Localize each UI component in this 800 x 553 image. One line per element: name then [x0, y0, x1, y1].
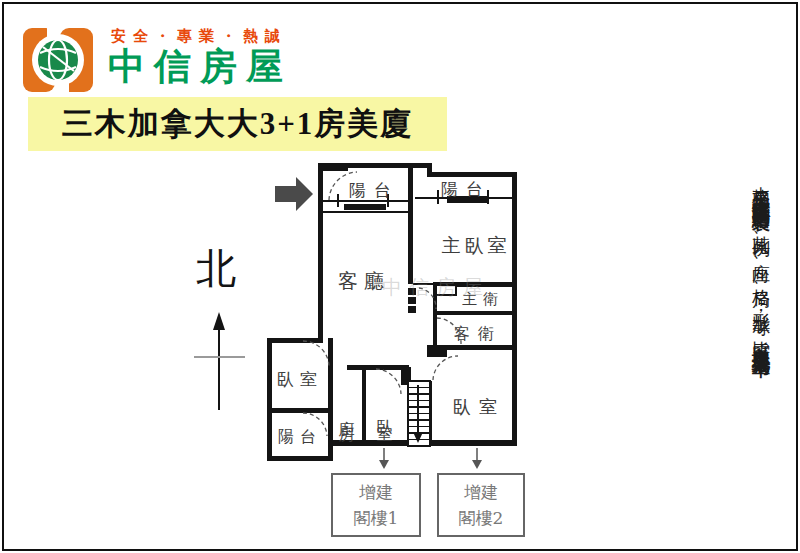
- room-label-bedroom-right: 臥室: [453, 395, 505, 419]
- room-label-master-bedroom: 主臥室: [442, 233, 511, 259]
- annex-arrow-2-head: [472, 460, 482, 469]
- annex-box-2-line-1: 增建: [439, 479, 523, 505]
- disclaimer-text: 本格局圖未依實際比例繪製，其比例、座向、格局、形狀等，皆需以房屋現場為準: [701, 172, 779, 552]
- annex-box-2-line-2: 閣樓2: [439, 505, 523, 531]
- room-label-balcony-top-left: 陽台: [349, 179, 399, 202]
- window-left-bar: [344, 204, 386, 210]
- annex-box-1-line-2: 閣樓1: [333, 505, 419, 531]
- title-banner: 三木加拿大大3+1房美廈: [28, 97, 447, 151]
- wall-left-upper: [318, 163, 323, 343]
- door-arc-bedroom-right: [433, 356, 458, 380]
- wall-central: [408, 163, 413, 284]
- wall-right: [512, 172, 517, 446]
- wall-top-right: [427, 172, 517, 177]
- annex-box-2: 增建 閣樓2: [437, 473, 525, 537]
- room-label-guest-bath: 客衛: [454, 324, 502, 345]
- entrance-arrow-icon: [275, 177, 313, 211]
- door-arc-bedroom-middle: [376, 369, 401, 394]
- wall-kitchen-divider: [362, 365, 366, 445]
- wall-block-bottom: [267, 456, 333, 461]
- wall-guestbath-bottom: [433, 345, 517, 350]
- chinatrust-logo-icon: [23, 28, 93, 92]
- listing-title: 三木加拿大大3+1房美廈: [62, 103, 414, 145]
- window-left-line-2: [322, 211, 410, 213]
- wall-block-left: [267, 338, 272, 461]
- globe-icon: [36, 38, 80, 82]
- room-label-bedroom-middle: 臥室: [374, 407, 395, 417]
- wall-kitchen-top: [347, 365, 409, 370]
- wall-bath-divider: [433, 311, 517, 315]
- annex-box-1-line-1: 增建: [333, 479, 419, 505]
- window-right-tick-1: [437, 190, 439, 204]
- watermark: 中信房屋: [382, 274, 490, 301]
- north-arrow-head: [213, 312, 225, 330]
- wall-block-top: [267, 338, 323, 343]
- room-label-balcony-lower-left: 陽台: [278, 427, 322, 448]
- room-label-bedroom-left: 臥室: [277, 368, 323, 391]
- room-label-balcony-top-right: 陽台: [441, 178, 491, 201]
- wall-block-right: [328, 338, 333, 461]
- annex-arrow-1-head: [379, 460, 389, 469]
- door-jamb-3: [408, 306, 416, 313]
- stairs: [407, 380, 431, 447]
- north-label: 北: [196, 241, 236, 296]
- wall-block-divider: [267, 408, 333, 413]
- annex-box-1: 增建 閣樓1: [331, 473, 421, 537]
- room-label-kitchen: 廚房: [336, 407, 357, 417]
- window-left-tick-1: [337, 194, 339, 207]
- door-arc-bedroom-left: [303, 341, 329, 366]
- company-name: 中信房屋: [108, 42, 292, 92]
- listing-flyer: 安全・專業・熱誠 中信房屋 三木加拿大大3+1房美廈 北: [0, 0, 800, 553]
